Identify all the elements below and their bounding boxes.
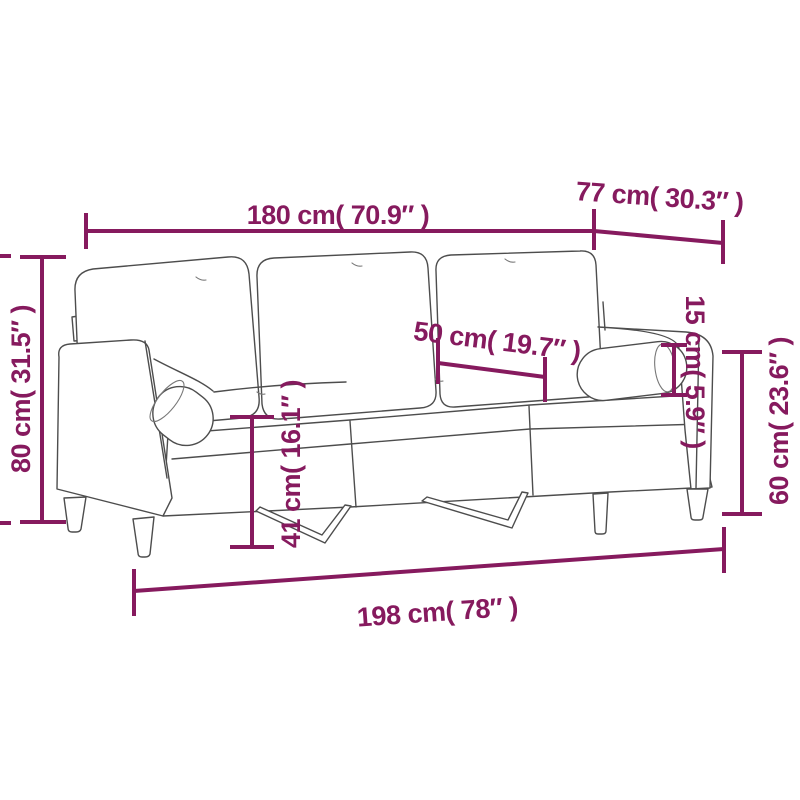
dim-depth-line bbox=[594, 231, 723, 243]
dim-total-width-line bbox=[134, 549, 724, 591]
sofa-dimension-diagram: 180 cm( 70.9″ ) 77 cm( 30.3″ ) 80 cm( 31… bbox=[0, 0, 800, 800]
dim-arm-height-label: 60 cm( 23.6″ ) bbox=[764, 337, 794, 505]
back-right-leg bbox=[593, 493, 608, 534]
dimension-back-height: 80 cm( 31.5″ ) bbox=[0, 256, 66, 523]
dim-depth-label: 77 cm( 30.3″ ) bbox=[575, 176, 745, 218]
dim-back-height-label: 80 cm( 31.5″ ) bbox=[6, 305, 36, 473]
mid-left-leg bbox=[133, 517, 154, 557]
dim-top-width-label: 180 cm( 70.9″ ) bbox=[247, 200, 430, 230]
dimension-total-width: 198 cm( 78″ ) bbox=[134, 527, 724, 633]
dim-bolster-label: 15 cm( 5.9″ ) bbox=[680, 295, 710, 449]
dimension-arm-height: 60 cm( 23.6″ ) bbox=[722, 337, 794, 514]
sofa-drawing bbox=[57, 251, 713, 557]
front-left-leg bbox=[64, 497, 86, 532]
diagram-canvas: 180 cm( 70.9″ ) 77 cm( 30.3″ ) 80 cm( 31… bbox=[0, 0, 800, 800]
dimension-top-width: 180 cm( 70.9″ ) bbox=[86, 200, 594, 250]
front-right-leg bbox=[687, 489, 708, 520]
dimension-depth: 77 cm( 30.3″ ) bbox=[575, 176, 745, 264]
dim-total-width-label: 198 cm( 78″ ) bbox=[356, 591, 519, 632]
dim-seat-height-label: 41 cm( 16.1″ ) bbox=[276, 380, 306, 548]
